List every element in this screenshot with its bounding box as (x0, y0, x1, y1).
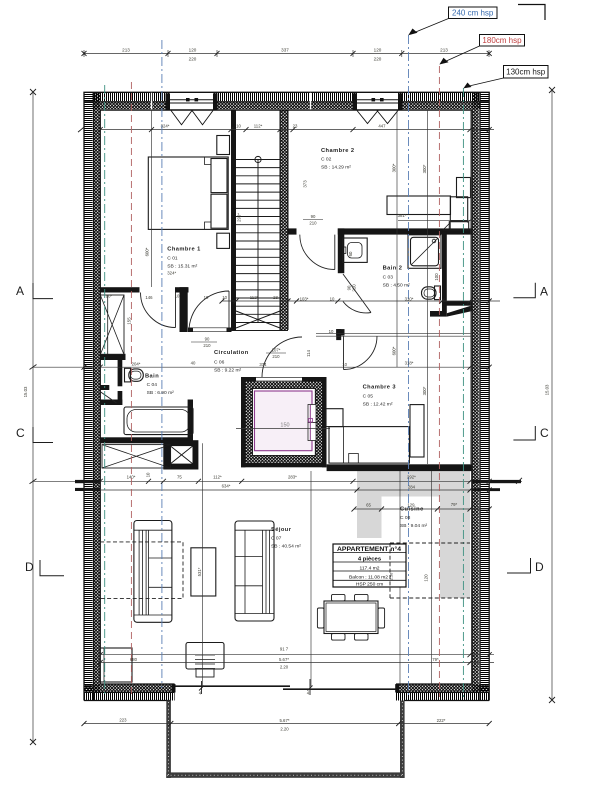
svg-text:C 04: C 04 (147, 382, 158, 388)
svg-text:310*: 310* (405, 297, 414, 302)
svg-text:A: A (16, 284, 24, 298)
svg-text:79*: 79* (432, 657, 439, 662)
svg-text:117.4 m2: 117.4 m2 (359, 565, 379, 571)
svg-text:Balcon : 11.08 m2: Balcon : 11.08 m2 (349, 574, 388, 580)
svg-text:SB : 9.04 m²: SB : 9.04 m² (400, 523, 428, 529)
svg-text:447: 447 (378, 124, 386, 129)
svg-text:600*: 600* (145, 247, 150, 256)
svg-text:120: 120 (189, 48, 197, 53)
svg-text:4 pièces: 4 pièces (358, 557, 382, 563)
svg-text:600*: 600* (392, 346, 397, 355)
svg-text:15.03: 15.03 (23, 386, 28, 397)
svg-text:210: 210 (272, 354, 280, 359)
svg-text:Chambre 2: Chambre 2 (321, 148, 354, 154)
svg-text:91 7: 91 7 (280, 647, 289, 652)
svg-text:300*: 300* (422, 164, 427, 173)
svg-text:75: 75 (177, 475, 182, 480)
svg-text:SB : 6.90 m²: SB : 6.90 m² (147, 390, 175, 396)
svg-text:90: 90 (205, 337, 210, 342)
svg-text:337: 337 (281, 48, 289, 53)
svg-text:Circulation: Circulation (214, 350, 249, 356)
svg-text:C: C (540, 426, 549, 440)
svg-text:10: 10 (342, 362, 347, 367)
svg-text:680: 680 (130, 657, 138, 662)
svg-text:SB : 15.31 m²: SB : 15.31 m² (167, 264, 197, 270)
svg-text:146: 146 (145, 295, 153, 300)
svg-text:Bain 2: Bain 2 (383, 266, 403, 272)
svg-text:210: 210 (352, 284, 357, 292)
svg-text:130cm hsp: 130cm hsp (506, 68, 546, 77)
svg-text:220: 220 (189, 57, 197, 62)
svg-text:318*: 318* (405, 361, 414, 366)
svg-text:240 cm hsp: 240 cm hsp (452, 9, 494, 18)
svg-text:D: D (25, 560, 34, 574)
svg-text:129: 129 (407, 503, 415, 508)
svg-text:531*: 531* (197, 567, 202, 576)
svg-text:120: 120 (424, 574, 429, 582)
svg-text:APPARTEMENT n°4: APPARTEMENT n°4 (337, 545, 401, 553)
svg-text:C 06: C 06 (214, 360, 225, 366)
svg-text:C 02: C 02 (321, 157, 332, 163)
svg-text:10: 10 (330, 297, 335, 302)
svg-text:D: D (535, 560, 544, 574)
svg-text:2.20: 2.20 (280, 665, 289, 670)
svg-text:213: 213 (440, 48, 448, 53)
svg-text:112*: 112* (254, 124, 263, 129)
svg-text:324*: 324* (167, 271, 176, 276)
svg-text:204*: 204* (132, 362, 141, 367)
svg-text:150: 150 (280, 423, 289, 429)
svg-text:120: 120 (374, 48, 382, 53)
svg-text:10: 10 (146, 472, 151, 477)
svg-text:Chambre 3: Chambre 3 (363, 385, 396, 391)
svg-text:634*: 634* (222, 484, 231, 489)
svg-text:90: 90 (311, 214, 316, 219)
svg-text:223: 223 (119, 718, 127, 723)
svg-text:C 08: C 08 (400, 515, 411, 521)
svg-text:140*: 140* (127, 475, 136, 480)
svg-text:381*: 381* (398, 213, 407, 218)
svg-text:SB : 14.29 m²: SB : 14.29 m² (321, 165, 351, 171)
svg-text:210: 210 (309, 221, 317, 226)
svg-text:SB : 12.42 m²: SB : 12.42 m² (363, 402, 393, 408)
svg-text:A: A (540, 285, 548, 299)
svg-text:C 07: C 07 (271, 536, 282, 542)
svg-text:374: 374 (259, 362, 267, 367)
svg-text:10: 10 (236, 124, 241, 129)
svg-text:114: 114 (306, 349, 311, 356)
svg-text:65: 65 (366, 503, 371, 508)
svg-text:112*: 112* (213, 475, 222, 480)
svg-text:Séjour: Séjour (271, 527, 292, 533)
svg-text:C 03: C 03 (383, 275, 394, 281)
svg-text:2.20: 2.20 (280, 727, 289, 732)
svg-text:155: 155 (127, 317, 132, 325)
svg-text:HSP 250 cm: HSP 250 cm (356, 582, 383, 588)
svg-text:90*: 90* (106, 294, 113, 299)
svg-text:10: 10 (329, 329, 334, 334)
svg-text:Bain: Bain (145, 374, 159, 380)
svg-text:220: 220 (374, 57, 382, 62)
svg-text:324*: 324* (161, 124, 170, 129)
svg-text:222*: 222* (437, 718, 446, 723)
svg-text:40: 40 (191, 361, 196, 366)
svg-text:SB : 4.50 m²: SB : 4.50 m² (383, 283, 411, 289)
svg-text:213: 213 (122, 48, 130, 53)
svg-text:C 05: C 05 (363, 394, 374, 400)
svg-text:15.03: 15.03 (545, 384, 550, 395)
svg-text:C: C (16, 426, 25, 440)
svg-text:10: 10 (175, 294, 180, 299)
svg-text:112*: 112* (250, 295, 259, 300)
svg-text:100: 100 (434, 273, 439, 281)
svg-text:SB : 40.54 m²: SB : 40.54 m² (271, 544, 301, 550)
svg-text:103*: 103* (300, 297, 309, 302)
svg-text:292*: 292* (407, 475, 416, 480)
svg-text:180cm hsp: 180cm hsp (482, 36, 522, 45)
svg-text:107*: 107* (272, 348, 281, 353)
svg-text:SB : 9.22 m²: SB : 9.22 m² (214, 368, 242, 374)
svg-text:Chambre 1: Chambre 1 (167, 247, 200, 253)
svg-text:C 01: C 01 (167, 256, 178, 262)
svg-text:290*: 290* (237, 213, 242, 222)
svg-text:284: 284 (408, 485, 416, 490)
svg-text:5.67*: 5.67* (279, 657, 289, 662)
svg-text:60: 60 (348, 251, 353, 256)
svg-text:283*: 283* (288, 475, 297, 480)
svg-text:373: 373 (303, 180, 308, 188)
svg-text:79*: 79* (451, 502, 458, 507)
svg-text:23: 23 (273, 295, 278, 300)
svg-text:300*: 300* (392, 163, 397, 172)
svg-text:210: 210 (203, 343, 211, 348)
svg-text:5.67*: 5.67* (279, 718, 289, 723)
svg-text:300*: 300* (422, 386, 427, 395)
svg-text:10: 10 (204, 295, 209, 300)
